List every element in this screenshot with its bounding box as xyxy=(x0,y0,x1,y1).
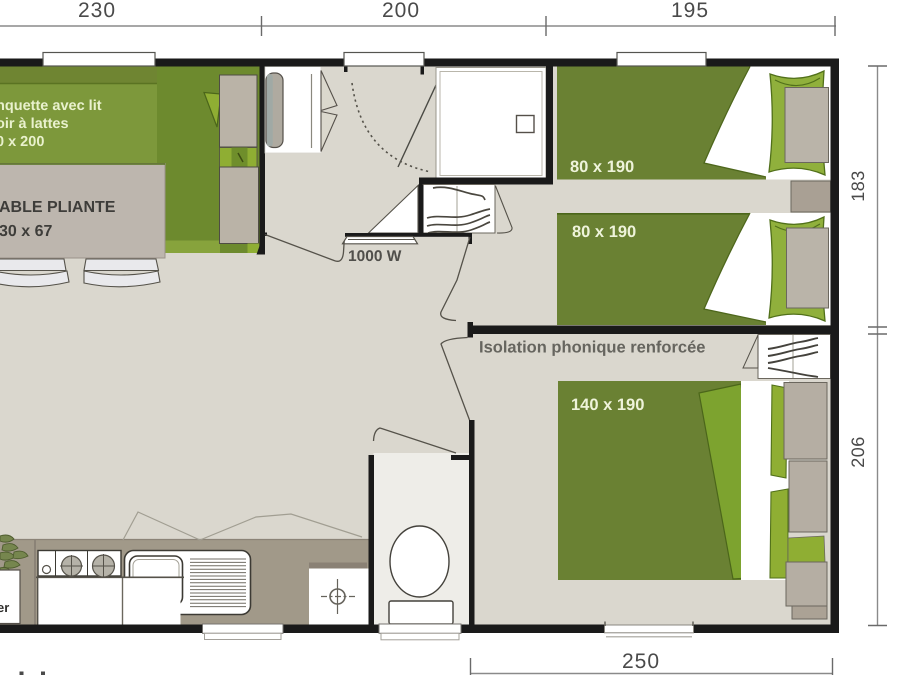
svg-text:1000 W: 1000 W xyxy=(348,248,402,265)
svg-text:200: 200 xyxy=(382,0,420,22)
svg-text:195: 195 xyxy=(671,0,709,22)
svg-text:Isolation phonique renforcée: Isolation phonique renforcée xyxy=(479,339,705,357)
svg-text:80 x 190: 80 x 190 xyxy=(572,223,636,241)
svg-text:ABLE PLIANTE: ABLE PLIANTE xyxy=(0,199,116,216)
svg-text:250: 250 xyxy=(622,650,660,673)
svg-text:30 x 67: 30 x 67 xyxy=(0,223,52,240)
svg-text:80 x 190: 80 x 190 xyxy=(570,158,634,176)
svg-text:nquette avec lit: nquette avec lit xyxy=(0,98,102,114)
svg-text:230: 230 xyxy=(78,0,116,22)
svg-text:oir à lattes: oir à lattes xyxy=(0,116,69,132)
svg-text:183: 183 xyxy=(848,170,868,202)
svg-text:206: 206 xyxy=(848,436,868,468)
svg-text:140 x 190: 140 x 190 xyxy=(571,396,644,414)
svg-text:0 x 200: 0 x 200 xyxy=(0,134,44,150)
svg-text:er: er xyxy=(0,600,9,615)
